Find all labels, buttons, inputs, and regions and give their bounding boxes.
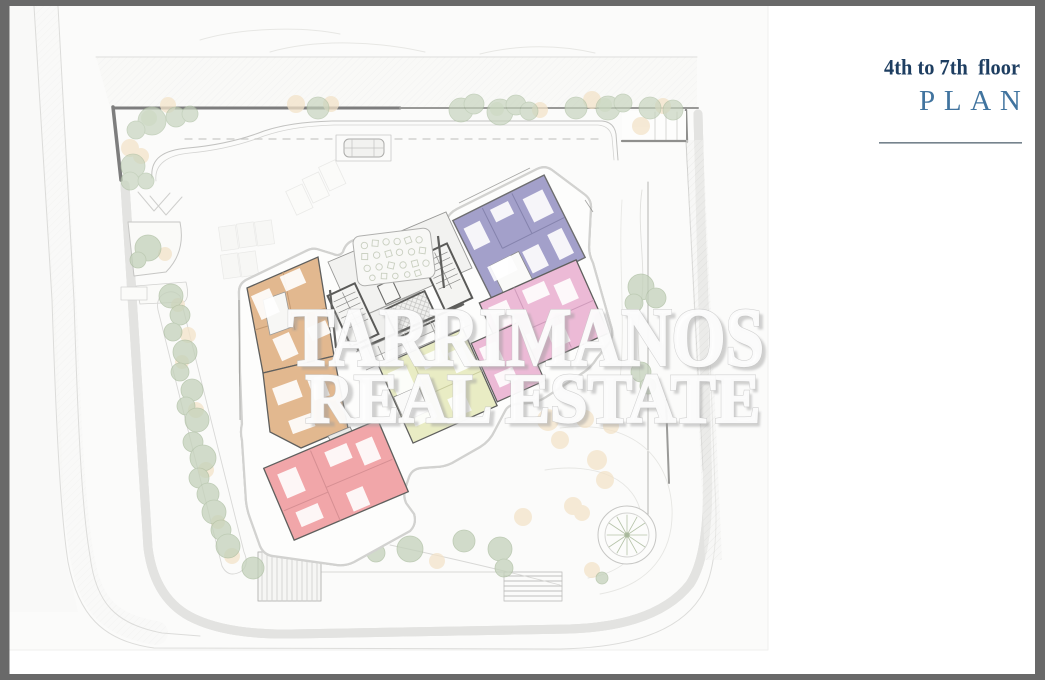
svg-text:PLAN: PLAN [919, 85, 1030, 117]
svg-text:4th to 7th floor: 4th to 7th floor [884, 55, 1020, 80]
svg-text:REAL ESTATE: REAL ESTATE [306, 361, 761, 438]
